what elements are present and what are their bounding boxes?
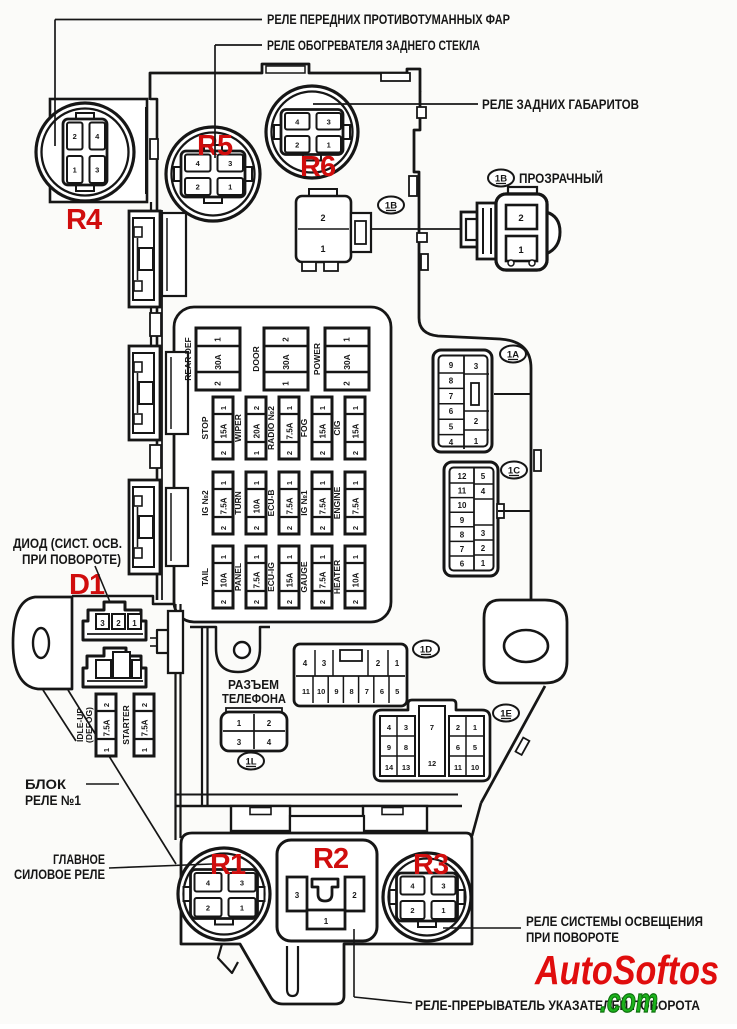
svg-text:1: 1 <box>518 245 524 256</box>
svg-text:RADIO №2: RADIO №2 <box>266 406 276 450</box>
svg-text:1: 1 <box>318 481 327 485</box>
svg-text:2: 2 <box>481 544 486 553</box>
svg-text:1: 1 <box>318 555 327 559</box>
svg-text:СИЛОВОЕ РЕЛЕ: СИЛОВОЕ РЕЛЕ <box>14 867 105 882</box>
svg-text:9: 9 <box>460 516 465 525</box>
svg-text:7.5A: 7.5A <box>253 571 262 588</box>
svg-text:7.5A: 7.5A <box>286 497 295 514</box>
svg-text:IG №2: IG №2 <box>200 490 210 516</box>
svg-text:7: 7 <box>430 723 434 732</box>
svg-text:2: 2 <box>318 526 327 530</box>
svg-text:2: 2 <box>252 526 261 530</box>
svg-text:10: 10 <box>317 687 325 696</box>
svg-text:3: 3 <box>100 619 105 628</box>
svg-text:11: 11 <box>458 487 467 496</box>
svg-text:1: 1 <box>73 166 77 175</box>
svg-text:1: 1 <box>228 183 232 192</box>
svg-text:1: 1 <box>327 140 331 149</box>
svg-text:DOOR: DOOR <box>251 346 261 372</box>
svg-text:РЕЛЕ СИСТЕМЫ ОСВЕЩЕНИЯ: РЕЛЕ СИСТЕМЫ ОСВЕЩЕНИЯ <box>526 914 703 929</box>
svg-text:R6: R6 <box>300 151 336 183</box>
svg-text:PANEL: PANEL <box>233 563 243 591</box>
svg-text:1: 1 <box>219 406 228 410</box>
svg-text:4: 4 <box>303 659 308 668</box>
svg-text:STARTER: STARTER <box>121 705 131 745</box>
svg-text:2: 2 <box>267 719 272 728</box>
svg-text:9: 9 <box>387 743 391 752</box>
svg-text:10A: 10A <box>220 572 229 587</box>
svg-text:2: 2 <box>116 619 121 628</box>
svg-text:2: 2 <box>196 183 200 192</box>
svg-text:ENGINE: ENGINE <box>332 486 342 519</box>
svg-text:1: 1 <box>343 337 352 342</box>
svg-text:1: 1 <box>219 481 228 485</box>
svg-text:1: 1 <box>214 337 223 342</box>
svg-text:ПРИ ПОВОРОТЕ: ПРИ ПОВОРОТЕ <box>526 930 619 945</box>
svg-text:2: 2 <box>351 526 360 530</box>
svg-text:РЕЛЕ №1: РЕЛЕ №1 <box>25 793 81 808</box>
svg-text:8: 8 <box>350 687 354 696</box>
svg-text:3: 3 <box>95 166 99 175</box>
svg-text:1: 1 <box>320 244 325 254</box>
svg-text:РЕЛЕ ПЕРЕДНИХ ПРОТИВОТУМАННЫХ: РЕЛЕ ПЕРЕДНИХ ПРОТИВОТУМАННЫХ ФАР <box>267 12 510 27</box>
svg-text:2: 2 <box>352 891 357 900</box>
svg-text:7.5A: 7.5A <box>141 719 150 736</box>
svg-text:1: 1 <box>351 481 360 485</box>
svg-text:2: 2 <box>219 451 228 455</box>
svg-text:1: 1 <box>252 451 261 455</box>
svg-text:7.5A: 7.5A <box>319 497 328 514</box>
svg-text:1: 1 <box>282 381 291 386</box>
svg-text:6: 6 <box>456 743 460 752</box>
svg-text:WIPER: WIPER <box>233 414 243 442</box>
svg-text:1: 1 <box>237 719 242 728</box>
svg-text:R2: R2 <box>313 843 348 875</box>
svg-text:2: 2 <box>295 140 299 149</box>
svg-text:15A: 15A <box>352 423 361 438</box>
svg-text:R1: R1 <box>210 849 246 881</box>
svg-text:1: 1 <box>324 917 329 926</box>
svg-text:7.5A: 7.5A <box>103 719 112 736</box>
svg-text:1: 1 <box>252 481 261 485</box>
svg-text:1: 1 <box>318 406 327 410</box>
svg-text:7.5A: 7.5A <box>286 422 295 439</box>
svg-text:10: 10 <box>471 763 479 772</box>
svg-text:3: 3 <box>404 723 408 732</box>
svg-text:2: 2 <box>102 703 111 707</box>
svg-text:30A: 30A <box>342 354 352 370</box>
svg-text:9: 9 <box>449 361 454 370</box>
svg-text:8: 8 <box>460 530 465 539</box>
svg-text:3: 3 <box>237 738 242 747</box>
svg-text:3: 3 <box>474 362 479 371</box>
svg-text:IG №1: IG №1 <box>299 490 309 516</box>
svg-text:9: 9 <box>334 687 338 696</box>
svg-text:10A: 10A <box>352 572 361 587</box>
svg-text:15A: 15A <box>286 572 295 587</box>
svg-text:2: 2 <box>282 337 291 342</box>
svg-text:2: 2 <box>410 906 414 915</box>
svg-text:2: 2 <box>518 213 523 224</box>
svg-text:1: 1 <box>481 559 486 568</box>
svg-text:13: 13 <box>402 763 410 772</box>
svg-text:1: 1 <box>219 555 228 559</box>
svg-text:5: 5 <box>473 743 477 752</box>
svg-text:2: 2 <box>219 526 228 530</box>
svg-text:ПРОЗРАЧНЫЙ: ПРОЗРАЧНЫЙ <box>519 171 603 186</box>
svg-text:ECU-IG: ECU-IG <box>266 562 276 592</box>
svg-text:STOP: STOP <box>200 416 210 439</box>
svg-text:HEATER: HEATER <box>332 560 342 594</box>
svg-text:2: 2 <box>140 703 149 707</box>
svg-text:15A: 15A <box>220 423 229 438</box>
svg-text:РЕЛЕ ЗАДНИХ ГАБАРИТОВ: РЕЛЕ ЗАДНИХ ГАБАРИТОВ <box>482 97 639 112</box>
svg-text:5: 5 <box>481 472 486 481</box>
svg-text:ПРИ ПОВОРОТЕ): ПРИ ПОВОРОТЕ) <box>22 552 121 567</box>
svg-text:2: 2 <box>73 132 77 141</box>
svg-text:4: 4 <box>449 438 454 447</box>
svg-text:TAIL: TAIL <box>200 568 210 586</box>
svg-text:10A: 10A <box>253 498 262 513</box>
svg-text:1: 1 <box>441 906 445 915</box>
svg-text:11: 11 <box>454 763 462 772</box>
svg-text:ДИОД (СИСТ. ОСВ.: ДИОД (СИСТ. ОСВ. <box>13 536 122 551</box>
svg-text:.com: .com <box>600 982 658 1020</box>
svg-text:2: 2 <box>285 526 294 530</box>
svg-text:R3: R3 <box>413 849 449 881</box>
svg-text:4: 4 <box>481 487 486 496</box>
svg-text:2: 2 <box>219 600 228 604</box>
svg-text:3: 3 <box>441 882 445 891</box>
svg-text:ГЛАВНОЕ: ГЛАВНОЕ <box>53 852 105 867</box>
svg-text:D1: D1 <box>69 569 105 601</box>
svg-text:7.5A: 7.5A <box>352 497 361 514</box>
svg-text:1: 1 <box>140 748 149 752</box>
svg-text:7.5A: 7.5A <box>319 571 328 588</box>
svg-text:2: 2 <box>285 600 294 604</box>
svg-text:20A: 20A <box>253 423 262 438</box>
svg-text:2: 2 <box>214 381 223 386</box>
svg-text:7: 7 <box>365 687 369 696</box>
svg-text:7: 7 <box>460 545 465 554</box>
svg-text:1: 1 <box>252 555 261 559</box>
svg-text:30A: 30A <box>213 354 223 370</box>
svg-text:ECU-B: ECU-B <box>266 490 276 517</box>
svg-text:2: 2 <box>376 659 381 668</box>
svg-text:30A: 30A <box>281 354 291 370</box>
svg-text:7: 7 <box>449 392 454 401</box>
svg-text:1: 1 <box>395 659 400 668</box>
svg-text:БЛОК: БЛОК <box>25 777 67 792</box>
svg-text:POWER: POWER <box>312 343 322 375</box>
svg-text:2: 2 <box>285 451 294 455</box>
svg-text:6: 6 <box>460 560 465 569</box>
svg-text:CIG: CIG <box>332 420 342 436</box>
svg-text:12: 12 <box>458 472 467 481</box>
svg-text:1: 1 <box>351 406 360 410</box>
svg-text:3: 3 <box>295 891 300 900</box>
svg-text:12: 12 <box>428 759 436 768</box>
svg-text:2: 2 <box>351 600 360 604</box>
svg-text:5: 5 <box>449 423 454 432</box>
svg-text:1: 1 <box>285 555 294 559</box>
svg-text:15A: 15A <box>319 423 328 438</box>
svg-text:REAR DEF: REAR DEF <box>183 337 193 380</box>
svg-text:14: 14 <box>385 763 394 772</box>
svg-text:ТЕЛЕФОНА: ТЕЛЕФОНА <box>222 692 286 706</box>
svg-text:3: 3 <box>322 659 327 668</box>
svg-text:2: 2 <box>318 451 327 455</box>
svg-text:2: 2 <box>318 600 327 604</box>
svg-text:6: 6 <box>449 407 454 416</box>
svg-text:8: 8 <box>404 743 408 752</box>
svg-text:РЕЛЕ ОБОГРЕВАТЕЛЯ ЗАДНЕГО СТЕК: РЕЛЕ ОБОГРЕВАТЕЛЯ ЗАДНЕГО СТЕКЛА <box>267 38 480 53</box>
svg-text:1: 1 <box>474 437 479 446</box>
svg-text:4: 4 <box>267 738 272 747</box>
svg-text:2: 2 <box>474 417 479 426</box>
svg-text:1: 1 <box>285 481 294 485</box>
svg-text:11: 11 <box>302 687 310 696</box>
svg-text:8: 8 <box>449 376 454 385</box>
svg-text:1: 1 <box>102 748 111 752</box>
svg-text:1: 1 <box>351 555 360 559</box>
svg-text:GAUGE: GAUGE <box>299 561 309 593</box>
svg-text:1: 1 <box>132 619 137 628</box>
svg-text:2: 2 <box>252 600 261 604</box>
svg-text:2: 2 <box>351 451 360 455</box>
svg-text:3: 3 <box>327 117 331 126</box>
svg-text:6: 6 <box>380 687 384 696</box>
svg-text:7.5A: 7.5A <box>220 497 229 514</box>
svg-text:1: 1 <box>240 903 244 912</box>
svg-text:2: 2 <box>343 381 352 386</box>
svg-text:FOG: FOG <box>299 418 309 437</box>
svg-text:R4: R4 <box>66 204 102 236</box>
svg-text:1: 1 <box>285 406 294 410</box>
svg-text:TURN: TURN <box>233 491 243 515</box>
svg-text:2: 2 <box>252 406 261 410</box>
svg-text:5: 5 <box>395 687 399 696</box>
svg-text:РАЗЪЕМ: РАЗЪЕМ <box>228 678 279 692</box>
svg-text:2: 2 <box>206 903 210 912</box>
svg-text:3: 3 <box>481 529 486 538</box>
svg-text:10: 10 <box>458 501 467 510</box>
svg-text:2: 2 <box>456 723 460 732</box>
svg-text:1: 1 <box>473 723 477 732</box>
svg-text:2: 2 <box>320 213 325 223</box>
svg-text:(DEFOG): (DEFOG) <box>84 707 94 743</box>
